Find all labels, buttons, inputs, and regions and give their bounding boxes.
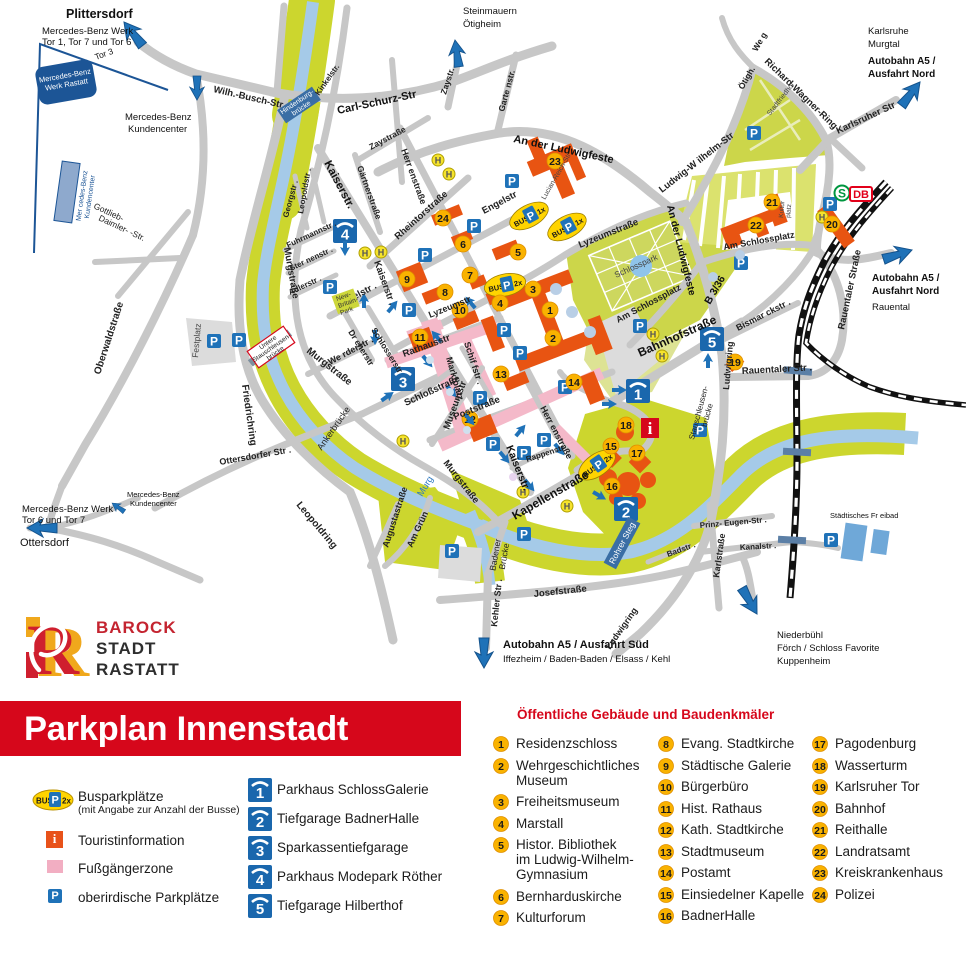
svg-text:17: 17 [631,448,643,460]
svg-text:8: 8 [442,287,448,299]
svg-text:Rauental: Rauental [872,302,910,313]
svg-text:P: P [52,795,59,807]
svg-text:20: 20 [814,804,826,816]
svg-text:21: 21 [766,197,778,209]
svg-text:2: 2 [498,761,504,773]
svg-text:P: P [750,127,758,141]
svg-text:H: H [378,248,385,258]
svg-text:4: 4 [256,872,265,889]
svg-text:18: 18 [620,420,632,432]
svg-text:14: 14 [568,377,580,389]
svg-text:5: 5 [515,247,521,259]
svg-text:5: 5 [498,840,504,852]
svg-text:22: 22 [750,220,762,232]
svg-text:P: P [489,438,497,452]
svg-text:10: 10 [660,782,672,794]
svg-text:20: 20 [826,219,838,231]
svg-text:P: P [421,249,429,263]
svg-text:H: H [435,156,442,166]
svg-text:2: 2 [550,333,556,345]
svg-text:Mercedes-Benz: Mercedes-Benz [127,490,180,499]
svg-text:Murgtal: Murgtal [868,39,900,50]
svg-text:3: 3 [399,375,407,392]
svg-text:P: P [448,545,456,559]
svg-text:1: 1 [256,785,264,802]
svg-text:15: 15 [605,441,617,453]
svg-text:11: 11 [660,804,671,816]
svg-text:P: P [520,528,528,542]
svg-text:5: 5 [256,901,264,918]
svg-text:15: 15 [660,890,672,902]
svg-text:Iffezheim / Baden-Baden / Elsa: Iffezheim / Baden-Baden / Elsass / Kehl [503,654,670,665]
svg-text:21: 21 [814,825,826,837]
svg-text:Autobahn A5 / Ausfahrt Süd: Autobahn A5 / Ausfahrt Süd [503,639,649,651]
svg-text:12: 12 [660,825,672,837]
svg-text:H: H [564,502,571,512]
svg-text:4: 4 [498,819,504,831]
svg-text:Städtisches Fr eibad: Städtisches Fr eibad [830,511,898,520]
svg-text:P: P [470,220,478,234]
svg-text:P: P [210,335,218,349]
svg-text:Tor 6 und Tor 7: Tor 6 und Tor 7 [22,515,85,526]
svg-text:9: 9 [663,761,669,773]
svg-text:16: 16 [606,481,618,493]
svg-text:P: P [636,320,644,334]
svg-text:H: H [400,437,407,447]
svg-text:Kanalstr .: Kanalstr . [740,541,777,552]
svg-text:7: 7 [498,913,504,925]
svg-text:P: P [826,198,834,212]
svg-text:P: P [540,434,548,448]
svg-text:24: 24 [437,213,449,225]
svg-text:Autobahn A5 /: Autobahn A5 / [872,273,940,284]
svg-text:2x: 2x [62,797,71,806]
svg-text:R: R [27,612,80,680]
svg-text:Förch / Schloss Favorite: Förch / Schloss Favorite [777,643,879,654]
svg-text:24: 24 [814,890,826,902]
svg-text:Kuppenheim: Kuppenheim [777,656,830,667]
svg-text:19: 19 [814,782,826,794]
svg-text:1: 1 [498,739,504,751]
svg-text:Ötigheim: Ötigheim [463,19,501,30]
svg-text:Karlsruhe: Karlsruhe [868,26,909,37]
svg-text:Steinmauern: Steinmauern [463,6,517,17]
svg-text:13: 13 [660,847,672,859]
svg-text:3: 3 [530,284,536,296]
svg-text:3: 3 [256,843,264,860]
svg-text:H: H [446,170,453,180]
svg-text:3: 3 [498,797,504,809]
svg-text:Kundencenter: Kundencenter [130,499,177,508]
svg-text:5: 5 [708,335,716,352]
svg-text:6: 6 [460,239,466,251]
svg-text:13: 13 [495,369,507,381]
svg-text:6: 6 [498,892,504,904]
svg-text:Ausfahrt Nord: Ausfahrt Nord [872,286,939,297]
svg-text:Ausfahrt Nord: Ausfahrt Nord [868,69,935,80]
svg-text:9: 9 [404,274,410,286]
svg-text:Mercedes-Benz Werk: Mercedes-Benz Werk [22,504,113,515]
svg-text:1: 1 [634,387,642,404]
svg-text:i: i [648,419,653,438]
svg-text:P: P [508,175,516,189]
svg-text:4: 4 [341,227,350,244]
svg-text:16: 16 [660,911,672,923]
svg-text:18: 18 [814,761,826,773]
svg-text:P: P [500,324,508,338]
svg-text:7: 7 [467,270,473,282]
svg-text:2: 2 [256,814,264,831]
svg-text:P: P [405,304,413,318]
svg-text:P: P [827,534,835,548]
svg-text:P: P [235,334,243,348]
svg-text:Kundencenter: Kundencenter [128,124,187,135]
svg-text:S: S [838,187,846,201]
svg-text:P: P [326,281,334,295]
svg-text:Autobahn A5 /: Autobahn A5 / [868,56,936,67]
svg-text:23: 23 [814,868,826,880]
svg-text:Niederbühl: Niederbühl [777,630,823,641]
svg-text:Mercedes-Benz: Mercedes-Benz [125,112,192,123]
svg-text:H: H [659,352,666,362]
svg-text:22: 22 [814,847,826,859]
svg-text:H: H [362,249,369,259]
svg-text:1: 1 [547,305,553,317]
svg-text:4: 4 [497,298,503,310]
svg-text:Plittersdorf: Plittersdorf [66,7,134,21]
svg-text:Tor 1, Tor 7 und Tor 6: Tor 1, Tor 7 und Tor 6 [42,37,131,48]
svg-text:17: 17 [814,739,826,751]
svg-text:8: 8 [663,739,669,751]
svg-text:P: P [516,347,524,361]
svg-text:DB: DB [853,189,869,201]
svg-text:platz: platz [785,204,793,218]
svg-text:14: 14 [660,868,672,880]
svg-text:Mercedes-Benz Werk: Mercedes-Benz Werk [42,26,133,37]
svg-text:Ottersdorf: Ottersdorf [20,537,70,549]
